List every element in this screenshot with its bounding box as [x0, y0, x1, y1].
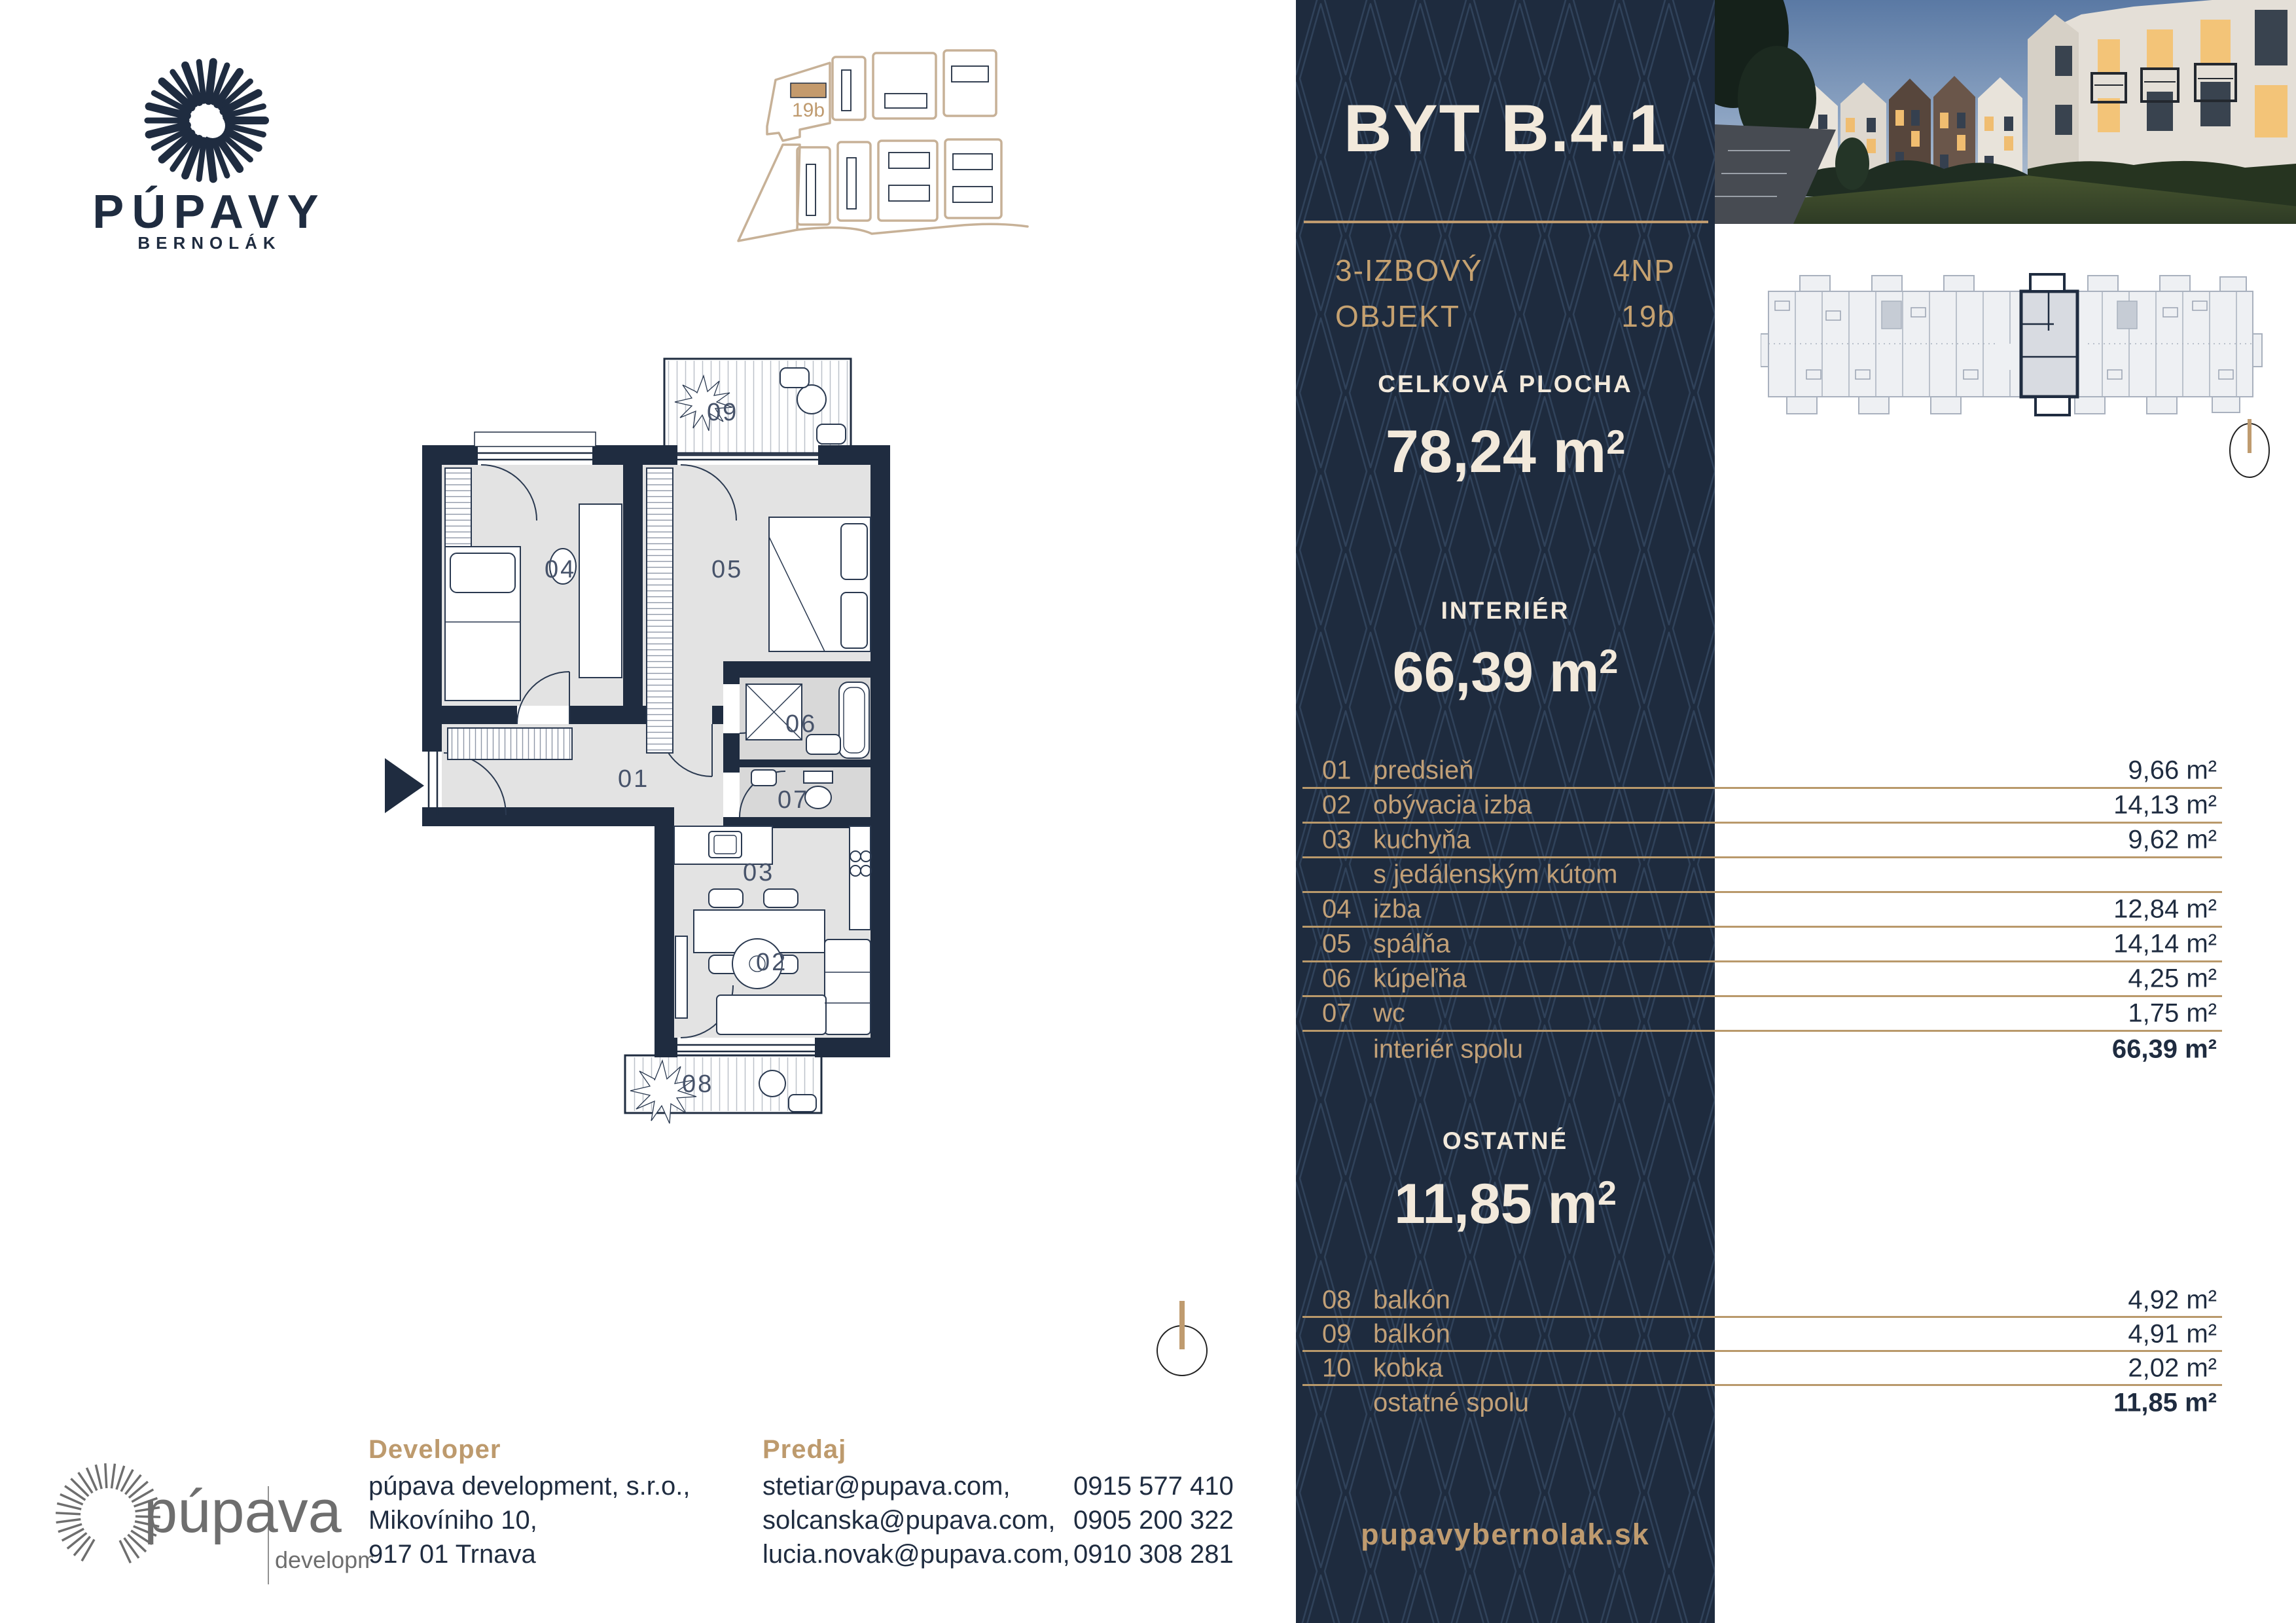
table-row: 08 balkón 4,92 m²: [1302, 1284, 2222, 1318]
table-row-total: ostatné spolu 11,85 m²: [1302, 1386, 2222, 1420]
table-row-total: interiér spolu 66,39 m²: [1302, 1032, 2222, 1067]
contact-email[interactable]: solcanska@pupava.com,: [762, 1506, 1056, 1535]
contact-email[interactable]: stetiar@pupava.com,: [762, 1472, 1011, 1501]
row-value: 4,25 m²: [2128, 964, 2217, 994]
table-row: 10 kobka 2,02 m²: [1302, 1352, 2222, 1386]
row-number: 10: [1322, 1353, 1352, 1383]
table-row: s jedálenským kútom: [1302, 858, 2222, 893]
row-name: kúpeľňa: [1373, 964, 1467, 994]
room-label-08: 08: [682, 1070, 713, 1098]
row-number: 05: [1322, 930, 1352, 959]
unit-title: BYT B.4.1: [1296, 90, 1715, 167]
row-name: kuchyňa: [1373, 826, 1471, 855]
row-name: izba: [1373, 895, 1421, 924]
row-number: 07: [1322, 999, 1352, 1029]
contact-phone[interactable]: 0915 577 410: [1073, 1472, 1234, 1501]
developer-logo: púpava development: [46, 1450, 373, 1614]
brand-name: PÚPAVY: [92, 185, 327, 239]
row-name: wc: [1373, 999, 1405, 1029]
developer-logo-name: púpava: [144, 1478, 342, 1545]
row-value: 4,91 m²: [2128, 1319, 2217, 1349]
floor-plan: 01 02 03 04 05 06 07 08 09: [367, 340, 942, 1362]
room-label-07: 07: [778, 786, 809, 814]
table-row: 06 kúpeľňa 4,25 m²: [1302, 962, 2222, 997]
site-plan-unit-label: 19b: [792, 100, 825, 121]
row-number: 01: [1322, 756, 1352, 786]
row-value: 2,02 m²: [2128, 1353, 2217, 1383]
interior-table: 01 predsieň 9,66 m² 02 obývacia izba 14,…: [1302, 754, 2222, 1067]
table-row: 02 obývacia izba 14,13 m²: [1302, 789, 2222, 824]
unit-rooms-type: 3-IZBOVÝ: [1335, 253, 1483, 287]
compass-icon: [1142, 1293, 1227, 1385]
room-label-05: 05: [711, 556, 743, 583]
flyer-page: PÚPAVY BERNOLÁK 19b: [0, 0, 2296, 1623]
contact-email[interactable]: lucia.novak@pupava.com,: [762, 1540, 1070, 1569]
entrance-arrow-icon: [385, 758, 424, 813]
title-divider: [1304, 221, 1708, 223]
row-value: 14,13 m²: [2113, 791, 2217, 820]
overview-compass-icon: [2230, 419, 2269, 477]
row-number: 02: [1322, 791, 1352, 820]
row-number: 06: [1322, 964, 1352, 994]
row-name: obývacia izba: [1373, 791, 1532, 820]
brand-subtitle: BERNOLÁK: [92, 233, 327, 253]
room-label-04: 04: [545, 556, 576, 583]
developer-line: 917 01 Trnava: [368, 1540, 536, 1569]
other-table: 08 balkón 4,92 m² 09 balkón 4,91 m² 10 k…: [1302, 1284, 2222, 1420]
site-plan: 19b: [720, 29, 1100, 337]
row-value: 4,92 m²: [2128, 1285, 2217, 1315]
table-row: 05 spálňa 14,14 m²: [1302, 928, 2222, 962]
interior-area-label: INTERIÉR: [1296, 597, 1715, 625]
developer-logo-sub: development: [275, 1546, 373, 1573]
total-area-label: CELKOVÁ PLOCHA: [1296, 371, 1715, 398]
room-label-01: 01: [618, 765, 649, 793]
row-value: 12,84 m²: [2113, 895, 2217, 924]
row-value: 14,14 m²: [2113, 930, 2217, 959]
unit-building: 19b: [1621, 293, 1676, 339]
row-name: interiér spolu: [1373, 1034, 1523, 1064]
table-row: 09 balkón 4,91 m²: [1302, 1318, 2222, 1352]
table-row: 03 kuchyňa 9,62 m²: [1302, 824, 2222, 858]
row-value: 9,66 m²: [2128, 756, 2217, 786]
total-area-value: 78,24 m2: [1296, 418, 1715, 486]
website-link[interactable]: pupavybernolak.sk: [1296, 1518, 1715, 1552]
row-value: 9,62 m²: [2128, 826, 2217, 855]
room-label-09: 09: [707, 399, 738, 426]
unit-object-label: OBJEKT: [1335, 299, 1460, 333]
developer-line: Mikovíniho 10,: [368, 1506, 537, 1535]
row-name: spálňa: [1373, 930, 1450, 959]
row-number: 04: [1322, 895, 1352, 924]
building-photo: [1715, 0, 2296, 224]
overview-highlight-unit: [2021, 274, 2077, 415]
row-value: 66,39 m²: [2112, 1034, 2217, 1064]
row-value: 11,85 m²: [2113, 1389, 2217, 1418]
interior-area-value: 66,39 m2: [1296, 640, 1715, 705]
sales-heading: Predaj: [762, 1435, 846, 1465]
developer-heading: Developer: [368, 1435, 501, 1465]
row-name: ostatné spolu: [1373, 1389, 1529, 1418]
unit-meta: 3-IZBOVÝ 4NP OBJEKT 19b: [1335, 247, 1676, 339]
row-name: balkón: [1373, 1285, 1450, 1315]
row-number: 09: [1322, 1319, 1352, 1349]
room-label-06: 06: [785, 710, 817, 738]
row-name: s jedálenským kútom: [1373, 860, 1617, 890]
other-area-label: OSTATNÉ: [1296, 1127, 1715, 1155]
room-label-03: 03: [743, 859, 774, 886]
contact-phone[interactable]: 0905 200 322: [1073, 1506, 1234, 1535]
developer-line: púpava development, s.r.o.,: [368, 1472, 690, 1501]
dandelion-icon: [142, 58, 270, 186]
building-overview: [1761, 272, 2296, 488]
table-row: 04 izba 12,84 m²: [1302, 893, 2222, 928]
row-number: 03: [1322, 826, 1352, 855]
site-plan-highlight: [791, 83, 826, 98]
row-value: 1,75 m²: [2128, 999, 2217, 1029]
row-name: kobka: [1373, 1353, 1443, 1383]
table-row: 07 wc 1,75 m²: [1302, 997, 2222, 1032]
room-label-02: 02: [756, 949, 787, 976]
contact-phone[interactable]: 0910 308 281: [1073, 1540, 1234, 1569]
row-name: predsieň: [1373, 756, 1473, 786]
row-number: 08: [1322, 1285, 1352, 1315]
row-name: balkón: [1373, 1319, 1450, 1349]
table-row: 01 predsieň 9,66 m²: [1302, 754, 2222, 789]
unit-floor: 4NP: [1613, 247, 1676, 293]
other-area-value: 11,85 m2: [1296, 1172, 1715, 1237]
